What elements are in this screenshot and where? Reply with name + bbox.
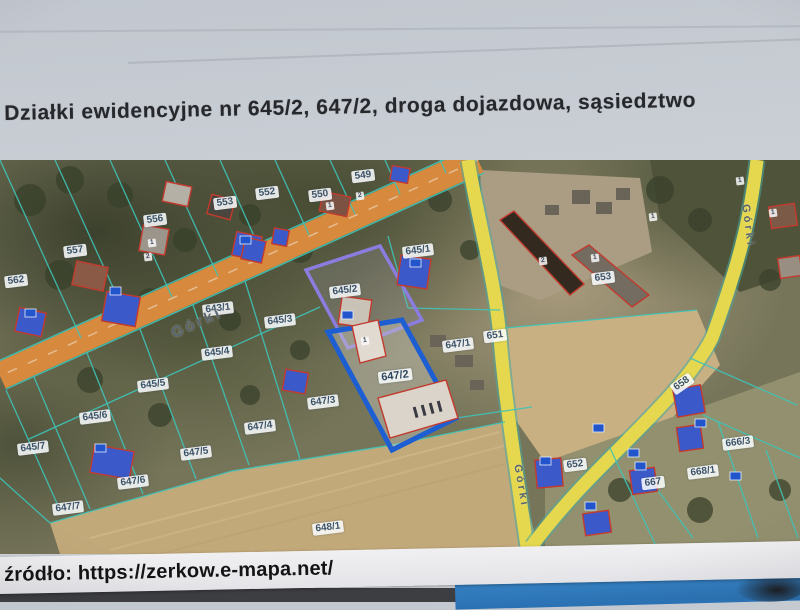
parcel-label: 647/7: [52, 500, 84, 516]
parcel-label: 647/3: [307, 394, 339, 410]
source-url-text: źródło: https://zerkow.e-mapa.net/: [0, 557, 334, 587]
cadastral-map-image: 549550552553556557562643/1645/1645/2645/…: [0, 160, 800, 554]
building-number-badge: 1: [769, 209, 778, 218]
parcel-label: 653: [591, 271, 615, 286]
building-number-badge: 1: [326, 202, 335, 211]
parcel-label: 647/2: [378, 368, 413, 384]
page-title: Działki ewidencyjne nr 645/2, 647/2, dro…: [4, 87, 764, 126]
building-number-badge: 1: [649, 213, 658, 222]
paper-crease-line: [128, 38, 800, 64]
parcel-label: 645/2: [329, 283, 361, 299]
street-name-label: Górki: [511, 463, 530, 508]
building-number-badge: 1: [148, 239, 157, 248]
parcel-label: 666/3: [722, 435, 754, 451]
parcel-label: 645/7: [17, 440, 49, 456]
parcel-label: 658: [669, 373, 694, 396]
parcel-label: 645/1: [402, 243, 434, 259]
parcel-label: 645/6: [79, 409, 111, 425]
building-number-badge: 1: [361, 337, 370, 346]
paper-crease-line: [0, 25, 800, 33]
parcel-label: 651: [483, 329, 507, 344]
parcel-label: 556: [143, 213, 167, 228]
building-number-badge: 1: [591, 254, 600, 263]
map-labels-layer: 549550552553556557562643/1645/1645/2645/…: [0, 160, 800, 554]
parcel-label: 647/4: [244, 419, 276, 435]
parcel-label: 552: [255, 186, 279, 201]
street-name-label: Górki: [169, 304, 225, 342]
parcel-label: 668/1: [687, 464, 719, 480]
parcel-label: 645/5: [137, 377, 169, 393]
street-name-label: Górki: [739, 204, 756, 249]
parcel-label: 553: [213, 196, 237, 211]
photographed-map-document: { "page": { "title": "Działki ewidencyjn…: [0, 0, 800, 600]
parcel-label: 645/3: [264, 313, 296, 329]
building-number-badge: 2: [539, 257, 548, 266]
parcel-label: 667: [641, 476, 665, 491]
parcel-label: 645/4: [201, 345, 233, 361]
building-number-badge: 1: [736, 177, 745, 186]
parcel-label: 550: [308, 188, 332, 203]
parcel-label: 647/6: [117, 474, 149, 490]
parcel-label: 647/5: [180, 445, 212, 461]
parcel-label: 549: [351, 169, 375, 184]
parcel-label: 562: [4, 274, 28, 289]
parcel-label: 557: [63, 244, 87, 259]
parcel-label: 652: [563, 458, 587, 473]
parcel-label: 648/1: [312, 520, 344, 536]
building-number-badge: 2: [356, 192, 365, 201]
parcel-label: 647/1: [442, 337, 474, 353]
building-number-badge: 2: [144, 253, 153, 262]
